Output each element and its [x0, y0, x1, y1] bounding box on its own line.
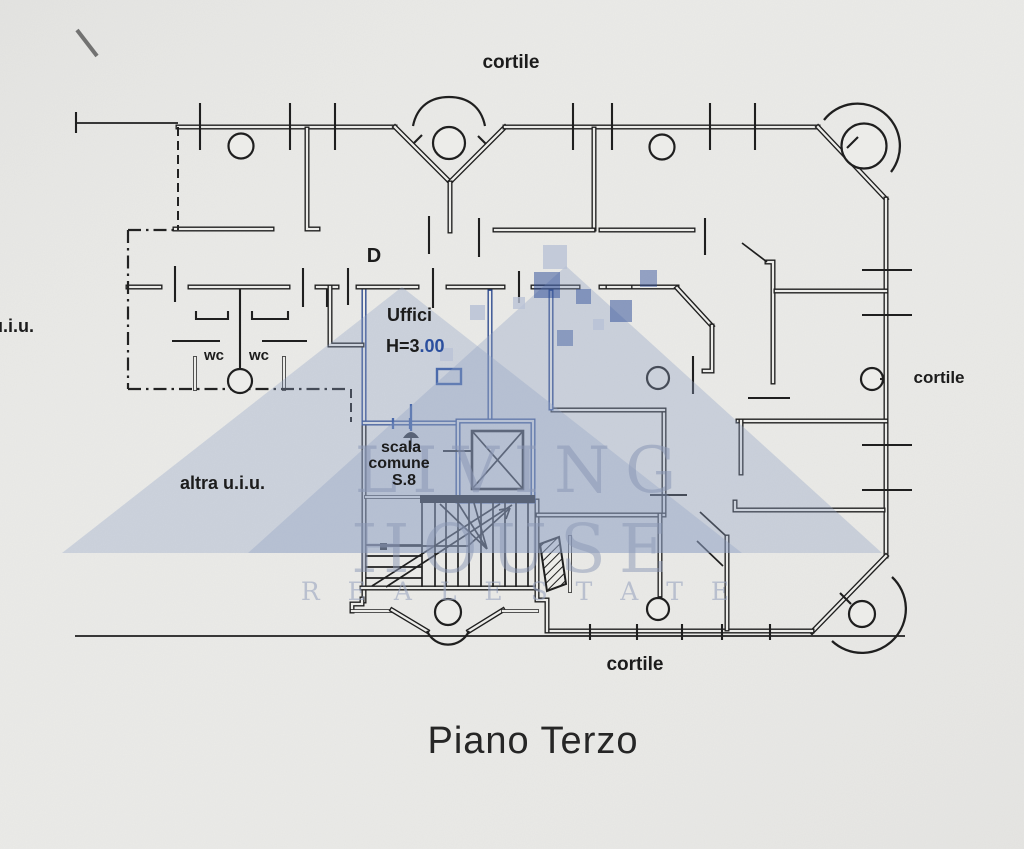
column — [650, 135, 675, 160]
floor-title: Piano Terzo — [428, 720, 639, 762]
label-wc-right: wc — [248, 347, 269, 364]
floor-plan-drawing: LIVING HOUSE R E A L E S T A T E cortile… — [0, 0, 1024, 849]
label-cortile-bottom: cortile — [606, 654, 663, 675]
label-wc-left: wc — [203, 347, 224, 364]
label-room-d: D — [367, 245, 381, 267]
label-s8: S.8 — [392, 472, 416, 489]
wc-fixture — [228, 369, 252, 393]
watermark-brand-line3: R E A L E S T A T E — [301, 577, 739, 606]
label-scala: scala — [381, 439, 421, 456]
label-altra-uiu: altra u.i.u. — [180, 473, 265, 493]
label-comune: comune — [368, 455, 429, 472]
column — [229, 134, 254, 159]
label-office-height: H=3.00 — [386, 336, 445, 356]
label-uiu-left: u.i.u. — [0, 316, 34, 336]
column — [861, 368, 883, 390]
label-cortile-right: cortile — [913, 368, 964, 387]
label-uffici: Uffici — [387, 305, 432, 325]
floor-plan-page: LIVING HOUSE R E A L E S T A T E cortile… — [0, 0, 1024, 849]
label-cortile-top: cortile — [482, 52, 539, 73]
